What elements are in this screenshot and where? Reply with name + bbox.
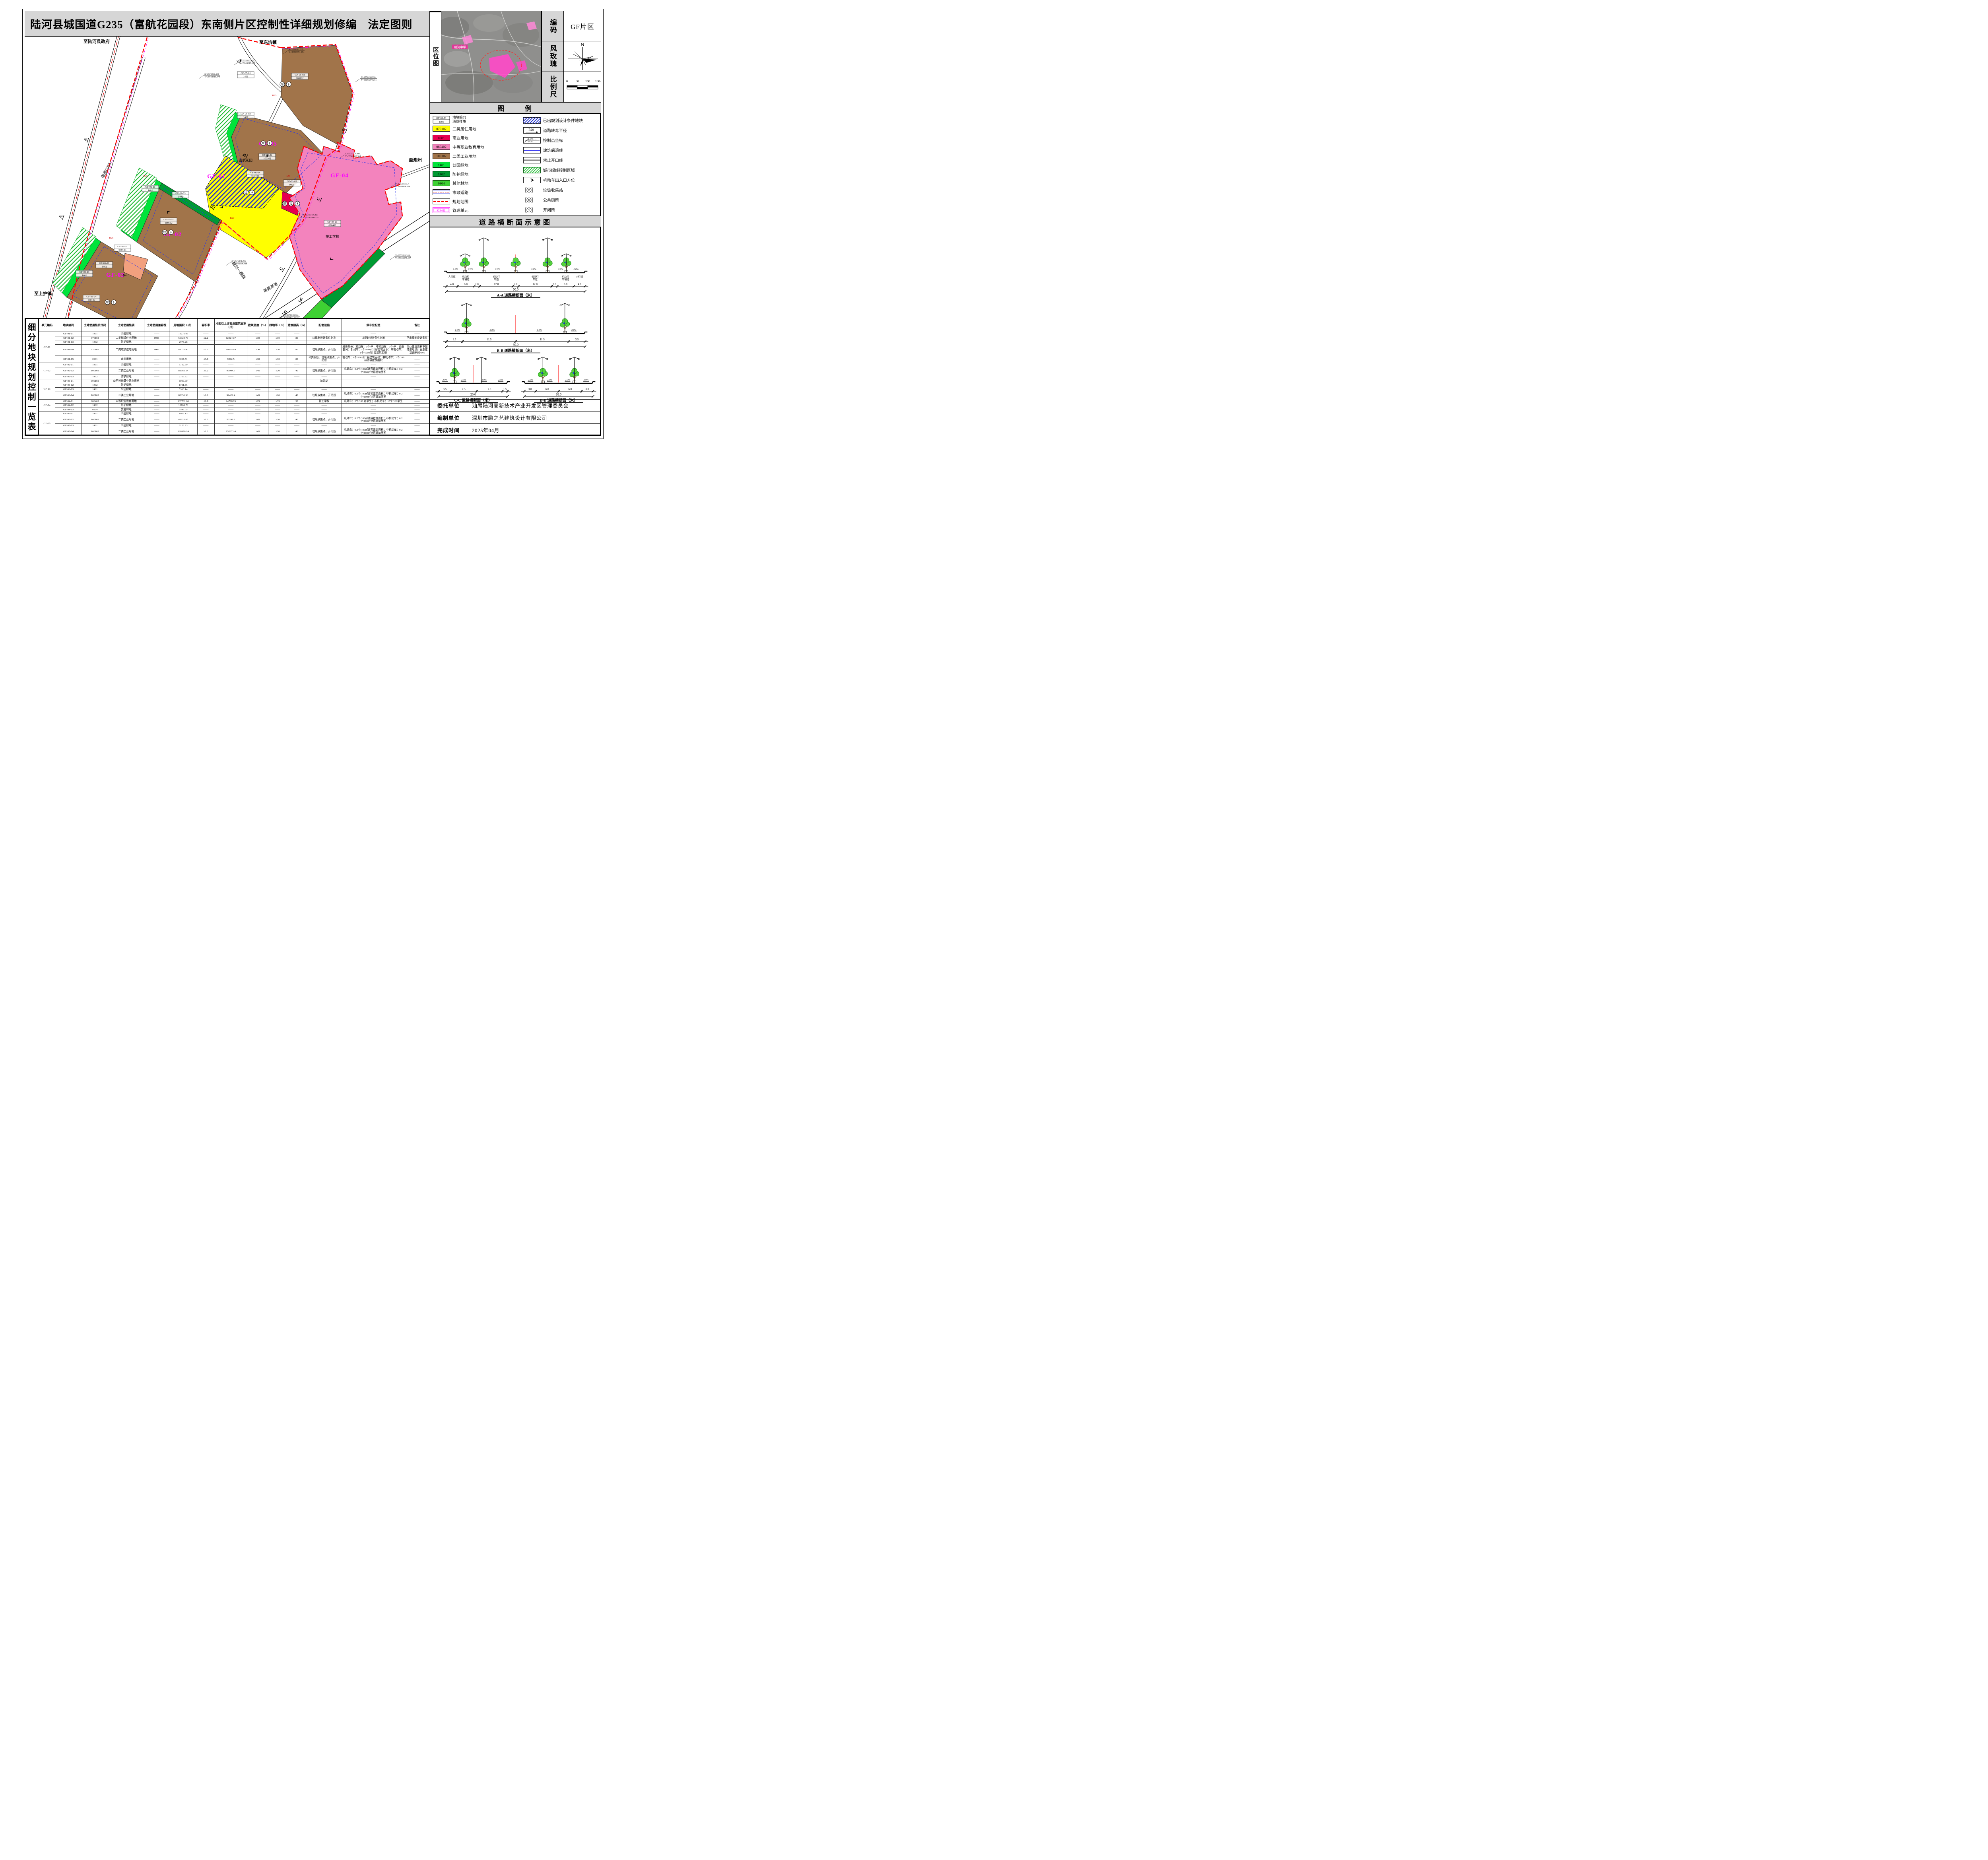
svg-text:080402: 080402 — [328, 224, 336, 227]
svg-text:30.0: 30.0 — [513, 343, 518, 347]
road-sections: 2.0%2.0%2.0%2.0%2.0%2.0%人行道机动行车辅道机动行车道机动… — [430, 227, 601, 400]
control-point-coordinate: X=2576252.423Y=39362910.876 — [199, 73, 220, 79]
svg-text:12.0: 12.0 — [533, 283, 538, 286]
table-cell: —— — [342, 412, 405, 416]
legend-swatch: 0901 — [433, 135, 450, 141]
svg-text:垃: 垃 — [290, 202, 293, 205]
unit-cell-GF-05: GF-05 — [39, 412, 55, 436]
table-cell: —— — [144, 404, 169, 408]
table-cell: —— — [144, 383, 169, 388]
table-cell: GF-03-04 — [55, 392, 82, 399]
control-point-coordinate: X=2575371.295Y=39362666.438 — [226, 260, 247, 266]
section-mark-A: A — [82, 136, 88, 142]
parcel-code-box-GF-03-04: GF-03-04100102 — [83, 295, 100, 301]
table-row-GF-03-01: GF-03GF-03-01090105公用设施营业网点用地——6000.00——… — [39, 379, 429, 383]
table-cell: —— — [197, 340, 214, 345]
table-cell: —— — [287, 404, 307, 408]
zoning-map: 至陆河县政府至东坑镇至潮州至上护镇国道G235规划一横路甬莞高速GF-01GF-… — [25, 37, 430, 318]
legend-item-coord: X=257……Y=393……控制点坐标 — [523, 135, 600, 145]
table-header-cell: 单元编码 — [39, 319, 55, 332]
svg-text:2.0%: 2.0% — [558, 268, 563, 271]
table-cell: —— — [268, 383, 287, 388]
table-cell: —— — [287, 375, 307, 379]
parcel-code-box-GF-02-02: GF-02-02100102 — [160, 218, 177, 224]
table-cell: 152371.4 — [214, 428, 247, 435]
table-cell: ≥45 — [247, 367, 268, 375]
table-cell: —— — [197, 408, 214, 412]
section-C-C: 2.0%2.0%2.0%2.0%3.57.57.51.520.0C-C 道路横断… — [432, 355, 514, 405]
table-cell: 居住部分：机动车：1个/户，非机动车：1个/户；商业部分：机动车：1个/100㎡… — [342, 344, 405, 355]
table-cell: —— — [405, 383, 429, 388]
svg-text:6.0: 6.0 — [545, 388, 549, 391]
svg-text:X=2575572.383: X=2575572.383 — [303, 214, 318, 216]
table-cell: ≤30 — [247, 344, 268, 355]
svg-text:GF-03-04: GF-03-04 — [86, 295, 97, 298]
svg-text:机动行车道: 机动行车道 — [532, 275, 539, 281]
table-cell: 40 — [287, 367, 307, 375]
svg-text:N: N — [581, 42, 584, 47]
table-cell: —— — [287, 363, 307, 367]
table-cell: —— — [342, 383, 405, 388]
svg-text:GF-02-03: GF-02-03 — [175, 192, 185, 195]
svg-text:X=2575524.249: X=2575524.249 — [395, 254, 410, 257]
info-labels: 编码 风玫瑰 比例尺 — [542, 11, 564, 102]
table-cell: —— — [307, 363, 342, 367]
svg-text:厕: 厕 — [528, 199, 530, 202]
table-cell: —— — [405, 340, 429, 345]
legend-swatch: 080402 — [433, 144, 450, 150]
table-cell: GF-01-05 — [55, 355, 82, 363]
legend-item-arrow: 机动车出入口方位 — [523, 175, 600, 185]
svg-text:3.5: 3.5 — [453, 338, 456, 341]
legend-item-1401: 1401公园绿地 — [433, 161, 523, 169]
switch-station-icon — [169, 230, 173, 235]
turn-radius-label: R20 — [195, 281, 200, 284]
section-drawing-B-B: 2.0%2.0%2.0%2.0%3.511.511.53.530.0B-B 道路… — [432, 300, 599, 353]
unit-label-GF-01: GF-01 — [207, 173, 225, 180]
table-cell: —— — [342, 340, 405, 345]
svg-text:1401: 1401 — [82, 274, 87, 277]
control-point-coordinate: X=2575818.734Y=39363126.145 — [278, 314, 300, 318]
svg-text:2.0%: 2.0% — [547, 379, 552, 381]
svg-text:机动行车辅道: 机动行车辅道 — [462, 275, 469, 281]
control-point-coordinate: X=2576206.456Y=39363019.698 — [234, 60, 255, 65]
legend-label: 禁止开口线 — [543, 157, 563, 163]
table-cell: —— — [268, 412, 287, 416]
parcel-code-box-GF-02-01: GF-02-011401 — [142, 185, 159, 192]
table-cell: 41916.05 — [169, 416, 197, 424]
table-cell: —— — [405, 375, 429, 379]
table-cell: ≥45 — [247, 428, 268, 435]
table-cell: 1402 — [82, 383, 109, 388]
table-cell: 加油站 — [307, 379, 342, 383]
parcel-code-box-GF-03-03: GF-03-031401 — [76, 270, 93, 277]
table-cell: 垃圾收集点、开闭所 — [307, 428, 342, 435]
table-row-GF-05-03: GF-05-031401公园绿地——6123.23———————————————… — [39, 424, 429, 428]
destination-label: 至陆河县政府 — [83, 39, 110, 44]
table-cell: —— — [197, 412, 214, 416]
legend-item-0901: 0901商业用地 — [433, 134, 523, 142]
table-cell: —— — [247, 412, 268, 416]
table-cell: —— — [307, 340, 342, 345]
svg-text:垃: 垃 — [528, 188, 530, 192]
site-label: 富航花园 — [239, 158, 252, 162]
footer-label: 编制单位 — [430, 412, 467, 424]
legend-label: 商业用地 — [452, 135, 468, 141]
unit-cell-GF-01: GF-01 — [39, 332, 55, 363]
page-title: 陆河县城国道G235（富航花园段）东南侧片区控制性详细规划修编 法定图则 — [30, 16, 413, 31]
street-tree — [511, 258, 520, 273]
legend-swatch: 1402 — [433, 171, 450, 177]
table-cell: —— — [247, 332, 268, 336]
turn-radius-label: R20 — [286, 175, 290, 177]
legend-swatch-boundary — [433, 198, 450, 204]
footer-row-date: 完成时间 2025年04月 — [430, 424, 601, 436]
title-block: 委托单位 汕尾陆河高新技术产业开发区管理委员会 编制单位 深圳市鹏之艺建筑设计有… — [430, 400, 601, 436]
table-cell: 80 — [287, 336, 307, 340]
svg-text:陆河中学: 陆河中学 — [454, 45, 466, 49]
table-cell: 二类工业用地 — [108, 428, 144, 435]
table-cell: ≥45 — [247, 416, 268, 424]
table-cell: —— — [307, 408, 342, 412]
table-cell: —— — [247, 340, 268, 345]
table-cell: 48025.40 — [169, 344, 197, 355]
table-cell: —— — [144, 428, 169, 435]
street-lamp — [569, 357, 579, 383]
right-panel: 区位图 陆河中学 编码 风玫瑰 比例尺 GF片区 N 050100150m 图 … — [430, 11, 601, 436]
table-cell: ≥30 — [268, 355, 287, 363]
table-header-cell: 容积率 — [197, 319, 214, 332]
table-cell: 2766.32 — [169, 375, 197, 379]
table-cell: —— — [307, 332, 342, 336]
table-cell: —— — [307, 383, 342, 388]
table-cell: —— — [405, 355, 429, 363]
svg-text:2.0%: 2.0% — [565, 379, 570, 381]
legend-label: 城市绿线控制区域 — [543, 167, 575, 173]
footer-row-designer: 编制单位 深圳市鹏之艺建筑设计有限公司 — [430, 412, 601, 424]
svg-text:6.0: 6.0 — [564, 283, 567, 286]
section-drawing-A-A: 2.0%2.0%2.0%2.0%2.0%2.0%人行道机动行车辅道机动行车道机动… — [432, 228, 599, 298]
svg-text:2.0%: 2.0% — [495, 268, 500, 271]
footer-value: 深圳市鹏之艺建筑设计有限公司 — [467, 412, 601, 424]
table-cell: 5360.14 — [169, 387, 197, 392]
legend-label: 管理单元 — [452, 207, 468, 213]
table-cell: —— — [247, 387, 268, 392]
svg-text:C: C — [278, 266, 284, 272]
table-cell: —— — [197, 383, 214, 388]
table-cell: —— — [268, 340, 287, 345]
svg-text:Y=39363308.364: Y=39363308.364 — [345, 155, 361, 157]
table-cell: 二类城镇住宅用地 — [108, 344, 144, 355]
table-cell: ≥35 — [268, 399, 287, 404]
table-cell: 1401 — [82, 387, 109, 392]
svg-text:11.5: 11.5 — [487, 338, 491, 341]
parcel-code-box-GF-05-01: GF-05-011401 — [237, 72, 254, 78]
turn-radius-label: R20 — [230, 217, 235, 219]
svg-text:3.5: 3.5 — [575, 338, 579, 341]
parcel-code-box-GF-03-01: GF-03-01090105 — [114, 245, 131, 251]
table-cell: GF-05-04 — [55, 428, 82, 435]
svg-text:2.0%: 2.0% — [455, 329, 460, 332]
code-label: 编码 — [548, 19, 558, 34]
table-cell: GF-03-01 — [55, 379, 82, 383]
table-cell: 1401 — [82, 332, 109, 336]
table-cell: —— — [307, 387, 342, 392]
svg-text:B-B 道路横断面（米）: B-B 道路横断面（米） — [497, 348, 534, 353]
table-cell: —— — [144, 355, 169, 363]
svg-text:人行道: 人行道 — [576, 275, 583, 278]
table-cell: —— — [214, 383, 247, 388]
table-cell: GF-03-02 — [55, 383, 82, 388]
legend-item-boundary: 规划范围 — [433, 197, 523, 206]
table-cell: —— — [405, 332, 429, 336]
svg-text:2.0%: 2.0% — [528, 379, 533, 381]
svg-text:100: 100 — [585, 80, 590, 83]
svg-text:3.0: 3.0 — [585, 388, 589, 391]
table-cell: 1401 — [82, 412, 109, 416]
table-cell: 123245.7 — [214, 336, 247, 340]
table-cell: GF-04-03 — [55, 408, 82, 412]
table-cell: 090105 — [82, 379, 109, 383]
table-cell: GF-05-02 — [55, 416, 82, 424]
svg-text:2.0: 2.0 — [475, 283, 479, 286]
svg-text:6.0: 6.0 — [464, 283, 468, 286]
table-row-GF-05-02: GF-05-02100102二类工业用地——41916.05≥1.250299.… — [39, 416, 429, 424]
table-cell: —— — [307, 424, 342, 428]
street-lamp — [560, 303, 570, 334]
table-cell: 070102 — [82, 344, 109, 355]
svg-text:GF-01-05: GF-01-05 — [287, 180, 297, 183]
svg-text:1401: 1401 — [243, 116, 248, 118]
section-drawing-D-D: 2.0%2.0%2.0%2.0%3.06.06.03.018.0D-D 道路横断… — [517, 355, 600, 403]
parcel-code-box-GF-01-05: GF-01-050901 — [283, 180, 300, 186]
street-lamp — [449, 357, 459, 383]
table-header-cell: 建筑密度（%） — [247, 319, 268, 332]
table-cell: 机动车：0.2个/100㎡计容建筑面积；非机动车：0.2个/100㎡计容建筑面积 — [342, 416, 405, 424]
table-row-GF-01-04: GF-01-04070102二类城镇住宅用地090148025.40≤2.210… — [39, 344, 429, 355]
svg-text:Y=39363019.698: Y=39363019.698 — [239, 62, 255, 64]
table-cell: 80 — [287, 355, 307, 363]
scalebar-label: 比例尺 — [548, 76, 558, 98]
table-cell: —— — [247, 408, 268, 412]
legend-swatch-circle — [523, 207, 541, 213]
table-cell: —— — [247, 375, 268, 379]
svg-text:1402: 1402 — [178, 195, 183, 198]
legend-item-r20: R20道路转弯半径 — [523, 125, 600, 135]
svg-text:0901: 0901 — [289, 183, 295, 186]
destination-label: 至潮州 — [409, 157, 422, 163]
svg-text:6.0: 6.0 — [568, 388, 572, 391]
legend-label: 开闭所 — [543, 207, 555, 213]
svg-text:100102: 100102 — [296, 77, 303, 80]
garbage-station-icon: 垃 — [289, 201, 293, 206]
table-cell: 0901 — [144, 344, 169, 355]
svg-text:人行道: 人行道 — [448, 275, 456, 278]
table-cell: 1401 — [82, 363, 109, 367]
svg-text:070102: 070102 — [251, 175, 259, 177]
svg-text:GF-04-01: GF-04-01 — [327, 221, 337, 223]
table-cell: —— — [197, 424, 214, 428]
table-cell: —— — [268, 379, 287, 383]
footer-value: 2025年04月 — [467, 424, 601, 436]
switch-station-icon — [267, 141, 272, 146]
footer-row-client: 委托单位 汕尾陆河高新技术产业开发区管理委员会 — [430, 400, 601, 412]
table-cell: 1721.85 — [169, 383, 197, 388]
zoning-map-svg: 至陆河县政府至东坑镇至潮州至上护镇国道G235规划一横路甬莞高速GF-01GF-… — [25, 37, 430, 318]
svg-text:1401: 1401 — [148, 189, 153, 192]
section-mark-A: A — [58, 214, 64, 219]
table-cell: 垃圾收集点、开闭所 — [307, 367, 342, 375]
svg-text:Y=39363473.407: Y=39363473.407 — [395, 257, 411, 259]
legend-label: 道路转弯半径 — [543, 127, 567, 133]
table-cell: GF-04-02 — [55, 404, 82, 408]
svg-text:2.0: 2.0 — [553, 283, 556, 286]
table-cell: —— — [405, 399, 429, 404]
table-cell: —— — [405, 379, 429, 383]
table-cell: 070102 — [82, 336, 109, 340]
table-cell: —— — [214, 375, 247, 379]
table-cell: —— — [214, 387, 247, 392]
turn-radius-label: R25 — [272, 94, 277, 97]
table-cell: —— — [405, 404, 429, 408]
legend-swatch-arrow — [523, 177, 541, 183]
svg-text:4.0: 4.0 — [578, 283, 581, 286]
svg-text:Y=39362910.876: Y=39362910.876 — [204, 76, 220, 78]
toilet-icon: 厕 — [282, 201, 287, 206]
destination-label: 至东坑镇 — [259, 39, 277, 45]
svg-text:X=2576252.423: X=2576252.423 — [204, 73, 219, 76]
svg-text:GF-01-04: GF-01-04 — [250, 171, 260, 174]
site-label: 技工学校 — [326, 235, 340, 239]
table-cell: —— — [214, 408, 247, 412]
scalebar: 050100150m — [564, 78, 601, 95]
table-cell: —— — [342, 379, 405, 383]
svg-text:090105: 090105 — [118, 249, 126, 251]
table-cell: —— — [287, 383, 307, 388]
table-cell: 7547.05 — [169, 408, 197, 412]
table-cell: —— — [144, 340, 169, 345]
legend-sample-bottom-label: 地块性质 — [452, 120, 466, 124]
table-cell: 以规划设计条件为准 — [342, 336, 405, 340]
windrose-icon: N — [564, 42, 601, 71]
legend-swatch-blue-line — [523, 147, 541, 153]
svg-text:2.0%: 2.0% — [571, 329, 577, 332]
legend-left-column: GF-01-011401地块编码地块性质070102二类居住用地0901商业用地… — [433, 115, 523, 215]
table-cell: 100102 — [82, 416, 109, 424]
table-cell: —— — [405, 428, 429, 435]
table-cell: —— — [214, 404, 247, 408]
table-cell: —— — [307, 375, 342, 379]
parcel-code-box-GF-03-02: GF-03-021402 — [96, 262, 113, 268]
svg-text:机动行车辅道: 机动行车辅道 — [562, 275, 569, 281]
legend-swatch: 1401 — [433, 162, 450, 168]
table-cell: —— — [214, 379, 247, 383]
table-cell: GF-01-01 — [55, 332, 82, 336]
unit-label-GF-04: GF-04 — [330, 173, 349, 179]
table-cell: GF-02-02 — [55, 367, 82, 375]
svg-text:11.5: 11.5 — [540, 338, 545, 341]
parcel-code-box-GF-04-01: GF-04-01080402 — [324, 220, 341, 227]
table-cell: ≤25 — [247, 399, 268, 404]
table-cell: 机动车：0.2个/100㎡计容建筑面积；非机动车：0.2个/100㎡计容建筑面积 — [342, 428, 405, 435]
district-code: GF片区 — [571, 21, 594, 31]
plot-control-table-area: 细分地块规划控制一览表 单元编码地块编码土地使用性质代码土地使用性质土地使用兼容… — [25, 318, 430, 436]
legend-label: 防护绿地 — [452, 171, 468, 177]
switch-station-icon — [295, 201, 300, 206]
garbage-station-icon: 垃 — [261, 141, 266, 146]
legend-item-circle: 厕公共厕所 — [523, 195, 600, 205]
table-cell: —— — [405, 412, 429, 416]
table-cell: —— — [287, 408, 307, 412]
table-cell: 其他林地 — [108, 408, 144, 412]
legend-item-gray-line: 禁止开口线 — [523, 155, 600, 165]
legend-swatch: 070102 — [433, 126, 450, 132]
table-cell: ≤20 — [268, 428, 287, 435]
table-cell: 技工学校 — [307, 399, 342, 404]
table-header-cell: 停车位配建 — [342, 319, 405, 332]
table-row-GF-02-03: GF-02-031402防护绿地——2766.32———————————————… — [39, 375, 429, 379]
table-cell: GF-01-04 — [55, 344, 82, 355]
svg-text:1402: 1402 — [102, 265, 107, 268]
table-cell: ≤20 — [268, 367, 287, 375]
location-map-label: 区位图 — [430, 11, 441, 102]
table-cell: —— — [342, 404, 405, 408]
table-cell: 100102 — [82, 392, 109, 399]
svg-text:A-A 道路横断面（米）: A-A 道路横断面（米） — [497, 293, 535, 298]
svg-text:2.0%: 2.0% — [531, 268, 536, 271]
table-cell: 6123.23 — [169, 424, 197, 428]
table-header-cell: 备注 — [405, 319, 429, 332]
svg-text:2.0%: 2.0% — [498, 379, 503, 381]
svg-text:R20: R20 — [528, 128, 534, 132]
table-header-cell: 土地使用性质代码 — [82, 319, 109, 332]
table-cell: GF-03-03 — [55, 387, 82, 392]
table-cell: 40 — [287, 428, 307, 435]
table-cell: 中等职业教育用地 — [108, 399, 144, 404]
table-cell: ≤20 — [268, 392, 287, 399]
table-cell: 防护绿地 — [108, 383, 144, 388]
table-cell: —— — [144, 367, 169, 375]
table-cell: —— — [307, 412, 342, 416]
table-cell: 3097.51 — [169, 355, 197, 363]
svg-text:垃: 垃 — [281, 82, 284, 86]
section-A-A: 2.0%2.0%2.0%2.0%2.0%2.0%人行道机动行车辅道机动行车道机动… — [432, 228, 599, 300]
legend-label: 公共厕所 — [543, 197, 559, 203]
table-cell: 50 — [287, 399, 307, 404]
table-cell: ≤2.2 — [197, 336, 214, 340]
table-cell: —— — [405, 367, 429, 375]
svg-text:GF-01: GF-01 — [437, 209, 446, 212]
table-header-cell: 地面以上计容总建筑面积（㎡） — [214, 319, 247, 332]
plan-sheet: 陆河县城国道G235（富航花园段）东南侧片区控制性详细规划修编 法定图则 至陆河… — [0, 0, 623, 440]
unit-cell-GF-02: GF-02 — [39, 363, 55, 379]
info-values: GF片区 N 050100150m — [564, 11, 601, 102]
table-cell: —— — [144, 363, 169, 367]
table-cell: 40 — [287, 392, 307, 399]
svg-text:X=2575371.295: X=2575371.295 — [231, 260, 246, 262]
svg-text:100102: 100102 — [87, 299, 95, 301]
table-row-GF-03-02: GF-03-021402防护绿地——1721.85———————————————… — [39, 383, 429, 388]
legend: GF-01-011401地块编码地块性质070102二类居住用地0901商业用地… — [430, 114, 601, 216]
table-cell: —— — [268, 387, 287, 392]
svg-text:GF-03-03: GF-03-03 — [79, 271, 89, 274]
table-cell: —— — [405, 392, 429, 399]
legend-swatch-circle: 厕 — [523, 197, 541, 203]
table-cell: —— — [197, 332, 214, 336]
section-mark-C: C — [278, 266, 285, 272]
svg-text:1401: 1401 — [243, 75, 248, 78]
windrose-label: 风玫瑰 — [548, 45, 558, 68]
